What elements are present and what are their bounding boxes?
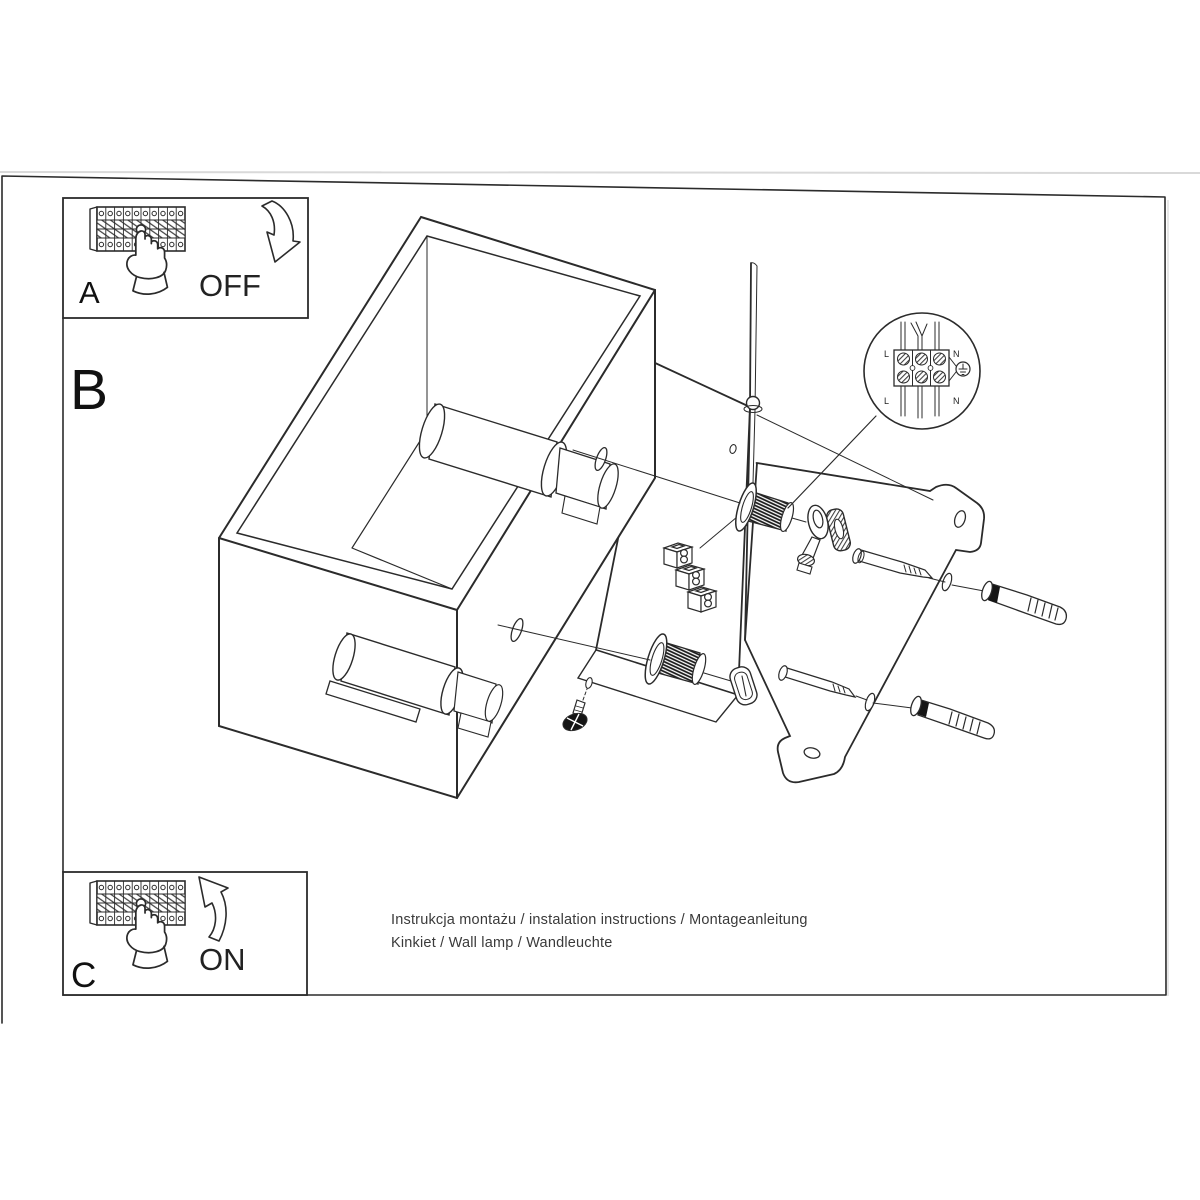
instruction-manual-page: A OFF B C ON — [0, 0, 1200, 1200]
wiring-label-bottom-right: N — [953, 396, 960, 406]
bracket-dome-screw — [747, 397, 760, 410]
wall-anchor-upper — [980, 580, 1067, 624]
on-label: ON — [199, 942, 246, 977]
wiring-label-top-left: L — [884, 349, 889, 359]
step-b-label: B — [70, 358, 108, 422]
section-c-panel: C ON — [63, 872, 307, 995]
wiring-detail-circle: L N L N — [788, 313, 980, 508]
wiring-label-bottom-left: L — [884, 396, 889, 406]
wall-plate-drawing — [745, 415, 984, 782]
fixing-screw — [561, 689, 590, 734]
wiring-label-top-right: N — [953, 349, 960, 359]
manual-drawing: A OFF B C ON — [0, 0, 1200, 1200]
step-a-label: A — [79, 275, 100, 310]
wall-anchor-lower — [909, 695, 995, 739]
section-a-panel: A OFF — [63, 198, 308, 318]
footer-line1: Instrukcja montażu / instalation instruc… — [391, 912, 808, 928]
footer-line2: Kinkiet / Wall lamp / Wandleuchte — [391, 935, 613, 951]
off-label: OFF — [199, 268, 261, 303]
step-c-label: C — [71, 956, 96, 995]
